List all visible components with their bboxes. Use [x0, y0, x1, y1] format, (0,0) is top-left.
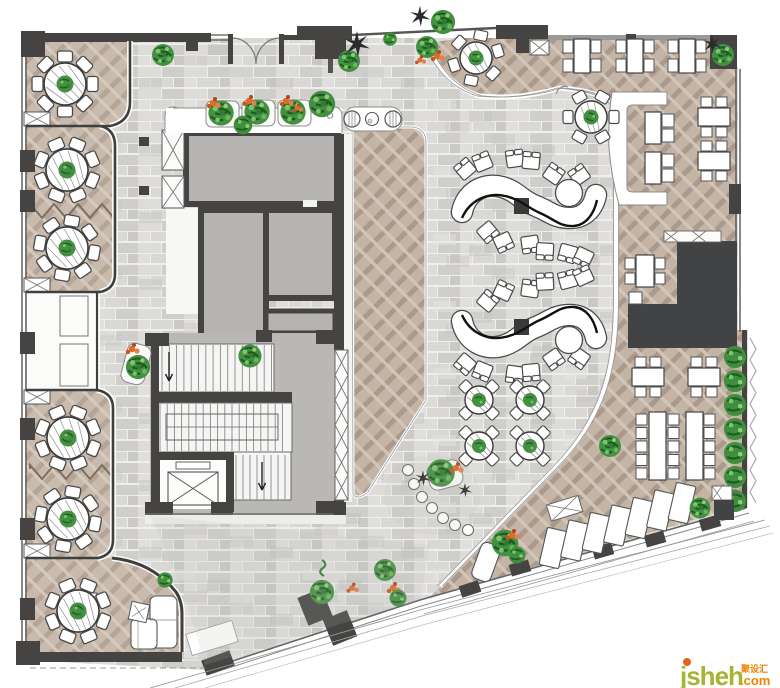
- svg-text:聚设汇: 聚设汇: [740, 663, 768, 674]
- svg-text:.com: .com: [740, 673, 770, 688]
